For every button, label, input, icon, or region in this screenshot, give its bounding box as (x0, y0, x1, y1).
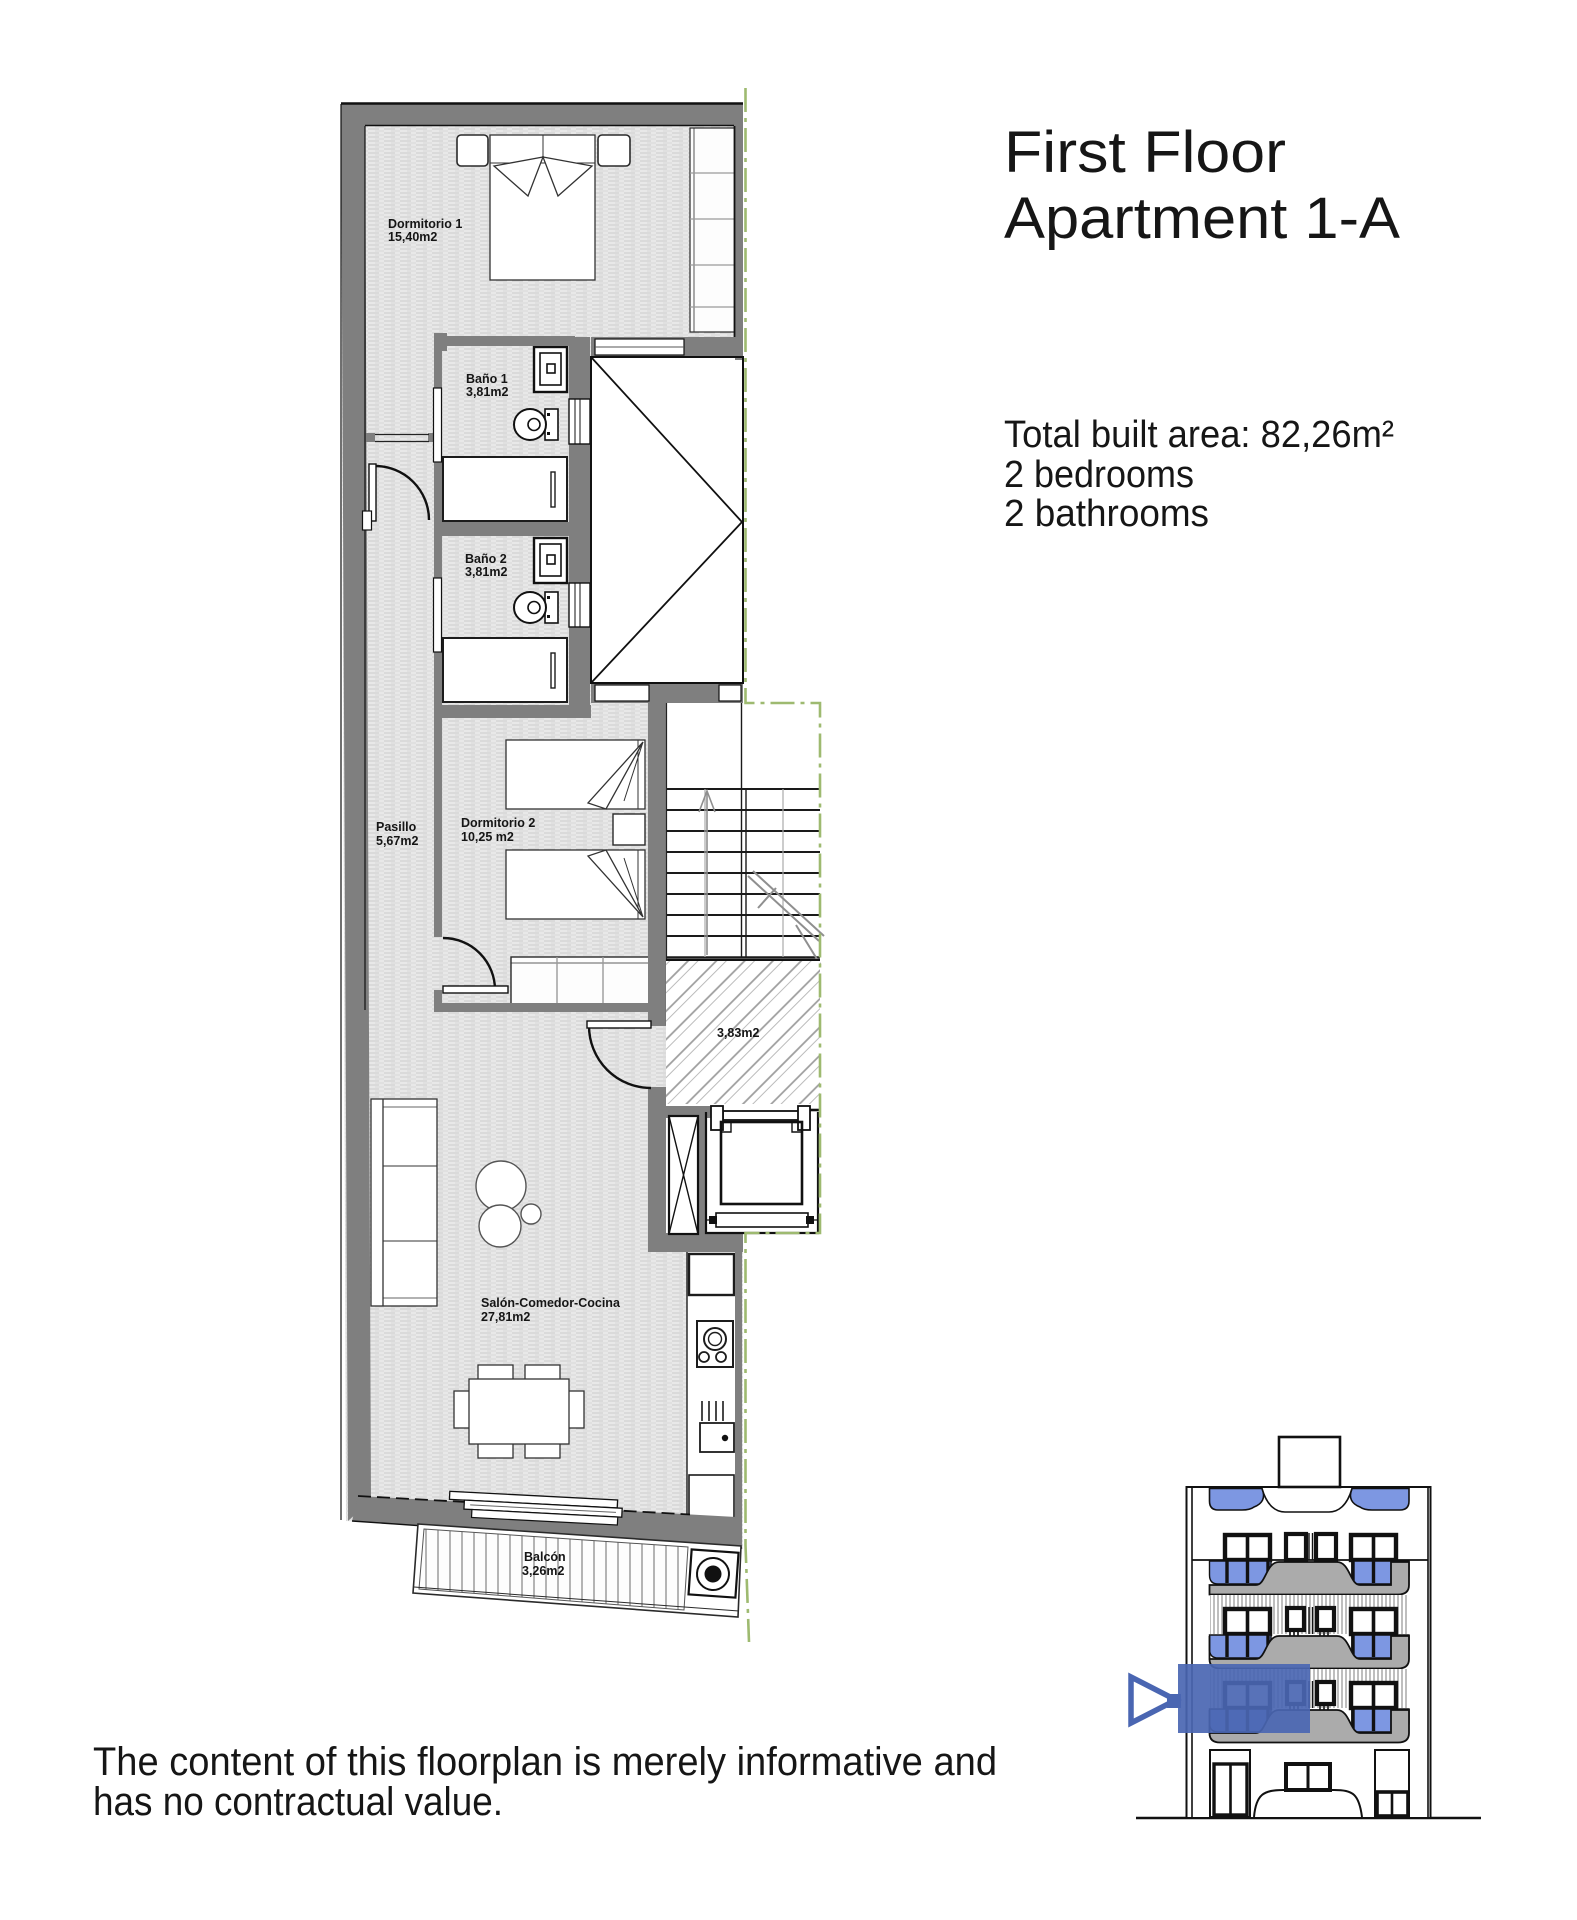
svg-text:3,81m2: 3,81m2 (465, 565, 507, 579)
svg-text:Pasillo: Pasillo (376, 820, 417, 834)
svg-text:Apartment 1-A: Apartment 1-A (1004, 186, 1400, 251)
svg-text:3,83m2: 3,83m2 (717, 1026, 759, 1040)
svg-text:has no contractual value.: has no contractual value. (93, 1780, 503, 1824)
svg-text:Balcón: Balcón (524, 1550, 566, 1564)
svg-text:15,40m2: 15,40m2 (388, 230, 437, 244)
svg-text:Baño 1: Baño 1 (466, 372, 508, 386)
svg-text:3,81m2: 3,81m2 (466, 385, 508, 399)
svg-text:Total built area: 82,26m²: Total built area: 82,26m² (1004, 414, 1394, 456)
svg-text:2 bedrooms: 2 bedrooms (1004, 454, 1194, 496)
svg-text:First Floor: First Floor (1004, 120, 1286, 185)
svg-text:Dormitorio 1: Dormitorio 1 (388, 217, 462, 231)
svg-text:27,81m2: 27,81m2 (481, 1310, 530, 1324)
svg-text:10,25 m2: 10,25 m2 (461, 830, 514, 844)
svg-text:3,26m2: 3,26m2 (522, 1564, 564, 1578)
svg-text:Dormitorio 2: Dormitorio 2 (461, 816, 535, 830)
svg-text:Salón-Comedor-Cocina: Salón-Comedor-Cocina (481, 1296, 621, 1310)
svg-text:2 bathrooms: 2 bathrooms (1004, 493, 1209, 535)
svg-text:5,67m2: 5,67m2 (376, 834, 418, 848)
svg-text:The content of this floorplan: The content of this floorplan is merely … (93, 1740, 997, 1784)
svg-text:Baño 2: Baño 2 (465, 552, 507, 566)
